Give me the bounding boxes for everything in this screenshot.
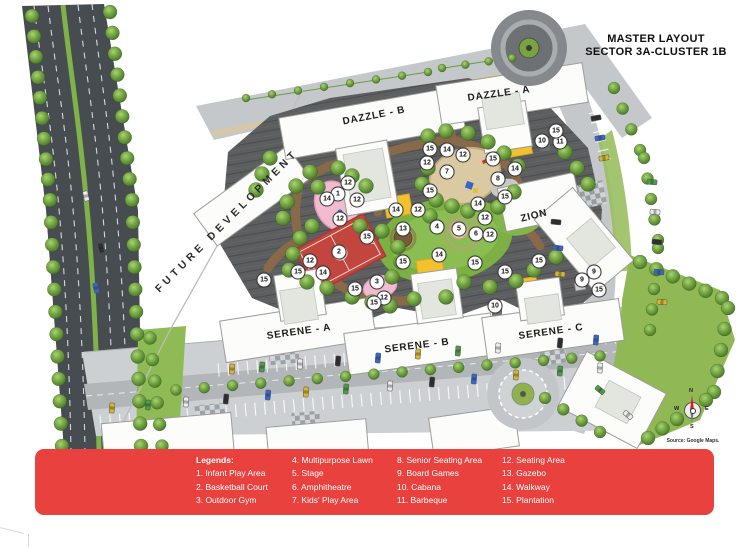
compass-north-label: N xyxy=(689,388,693,394)
map-marker-14: 14 xyxy=(440,143,455,158)
page-title: MASTER LAYOUT SECTOR 3A-CLUSTER 1B xyxy=(562,33,750,59)
legend-column-2: 4. Multipurpose Lawn 5. Stage 6. Amphith… xyxy=(292,454,373,508)
legend-item: 3. Outdoor Gym xyxy=(196,494,268,507)
compass-rose: N S W E xyxy=(674,394,710,434)
map-marker-14: 14 xyxy=(508,162,523,177)
map-marker-15: 15 xyxy=(486,152,501,167)
legend-item: 14. Walkway xyxy=(502,481,565,494)
map-marker-12: 12 xyxy=(483,228,498,243)
legend-item: 12. Seating Area xyxy=(502,454,565,467)
map-marker-14: 14 xyxy=(320,192,335,207)
map-marker-15: 15 xyxy=(498,190,513,205)
map-marker-12: 12 xyxy=(350,193,365,208)
legend-column-1: Legends: 1. Infant Play Area 2. Basketba… xyxy=(196,454,268,508)
crop-mark xyxy=(28,534,29,546)
map-marker-14: 14 xyxy=(471,197,486,212)
map-marker-15: 15 xyxy=(468,256,483,271)
legend-item: 4. Multipurpose Lawn xyxy=(292,454,373,467)
legend-column-4: 12. Seating Area 13. Gazebo 14. Walkway … xyxy=(502,454,565,508)
map-marker-15: 15 xyxy=(549,124,564,139)
map-marker-15: 15 xyxy=(367,296,382,311)
map-marker-2: 2 xyxy=(332,245,347,260)
map-marker-14: 14 xyxy=(316,266,331,281)
map-marker-12: 12 xyxy=(420,156,435,171)
title-line2: SECTOR 3A-CLUSTER 1B xyxy=(562,46,750,59)
map-marker-15: 15 xyxy=(291,265,306,280)
map-marker-10: 10 xyxy=(535,134,550,149)
map-marker-12: 12 xyxy=(411,203,426,218)
legend-item: 5. Stage xyxy=(292,467,373,480)
map-marker-7: 7 xyxy=(440,165,455,180)
map-marker-15: 15 xyxy=(396,255,411,270)
map-marker-5: 5 xyxy=(452,222,467,237)
compass-center-dot-icon xyxy=(690,408,696,414)
map-marker-12: 12 xyxy=(478,211,493,226)
map-marker-9: 9 xyxy=(587,265,602,280)
map-marker-14: 14 xyxy=(389,203,404,218)
map-marker-15: 15 xyxy=(498,265,513,280)
map-marker-15: 15 xyxy=(423,184,438,199)
map-marker-15: 15 xyxy=(348,282,363,297)
map-marker-6: 6 xyxy=(469,227,484,242)
map-marker-12: 12 xyxy=(456,148,471,163)
compass-south-label: S xyxy=(690,424,694,430)
legend-column-3: 8. Senior Seating Area 9. Board Games 10… xyxy=(397,454,482,508)
legend-bar: Legends: 1. Infant Play Area 2. Basketba… xyxy=(35,449,714,515)
map-marker-12: 12 xyxy=(333,212,348,227)
legend-item: 1. Infant Play Area xyxy=(196,467,268,480)
legend-item: 7. Kids' Play Area xyxy=(292,494,373,507)
map-marker-13: 13 xyxy=(396,222,411,237)
compass-east-label: E xyxy=(705,406,709,412)
legend-item: 15. Plantation xyxy=(502,494,565,507)
map-marker-4: 4 xyxy=(430,220,445,235)
title-line1: MASTER LAYOUT xyxy=(562,33,750,46)
master-layout-page: DAZZLE - BDAZZLE - AZIONSERENE - ASERENE… xyxy=(0,0,750,548)
map-marker-14: 14 xyxy=(432,248,447,263)
legend-item: 13. Gazebo xyxy=(502,467,565,480)
roundabout-north xyxy=(491,10,567,86)
legend-item: 10. Cabana xyxy=(397,481,482,494)
map-marker-10: 10 xyxy=(488,299,503,314)
map-marker-15: 15 xyxy=(592,283,607,298)
legend-title: Legends: xyxy=(196,454,268,467)
legend-item: 2. Basketball Court xyxy=(196,481,268,494)
legend-item: 6. Amphitheatre xyxy=(292,481,373,494)
map-marker-15: 15 xyxy=(257,273,272,288)
map-marker-8: 8 xyxy=(491,172,506,187)
legend-item: 9. Board Games xyxy=(397,467,482,480)
map-marker-15: 15 xyxy=(532,254,547,269)
legend-item: 8. Senior Seating Area xyxy=(397,454,482,467)
map-marker-12: 12 xyxy=(341,176,356,191)
map-marker-15: 15 xyxy=(423,142,438,157)
compass-west-label: W xyxy=(674,406,679,412)
map-marker-3: 3 xyxy=(370,275,385,290)
map-marker-12: 12 xyxy=(303,254,318,269)
source-note: Source: Google Maps. xyxy=(655,438,731,444)
legend-item: 11. Barbeque xyxy=(397,494,482,507)
map-marker-15: 15 xyxy=(360,230,375,245)
